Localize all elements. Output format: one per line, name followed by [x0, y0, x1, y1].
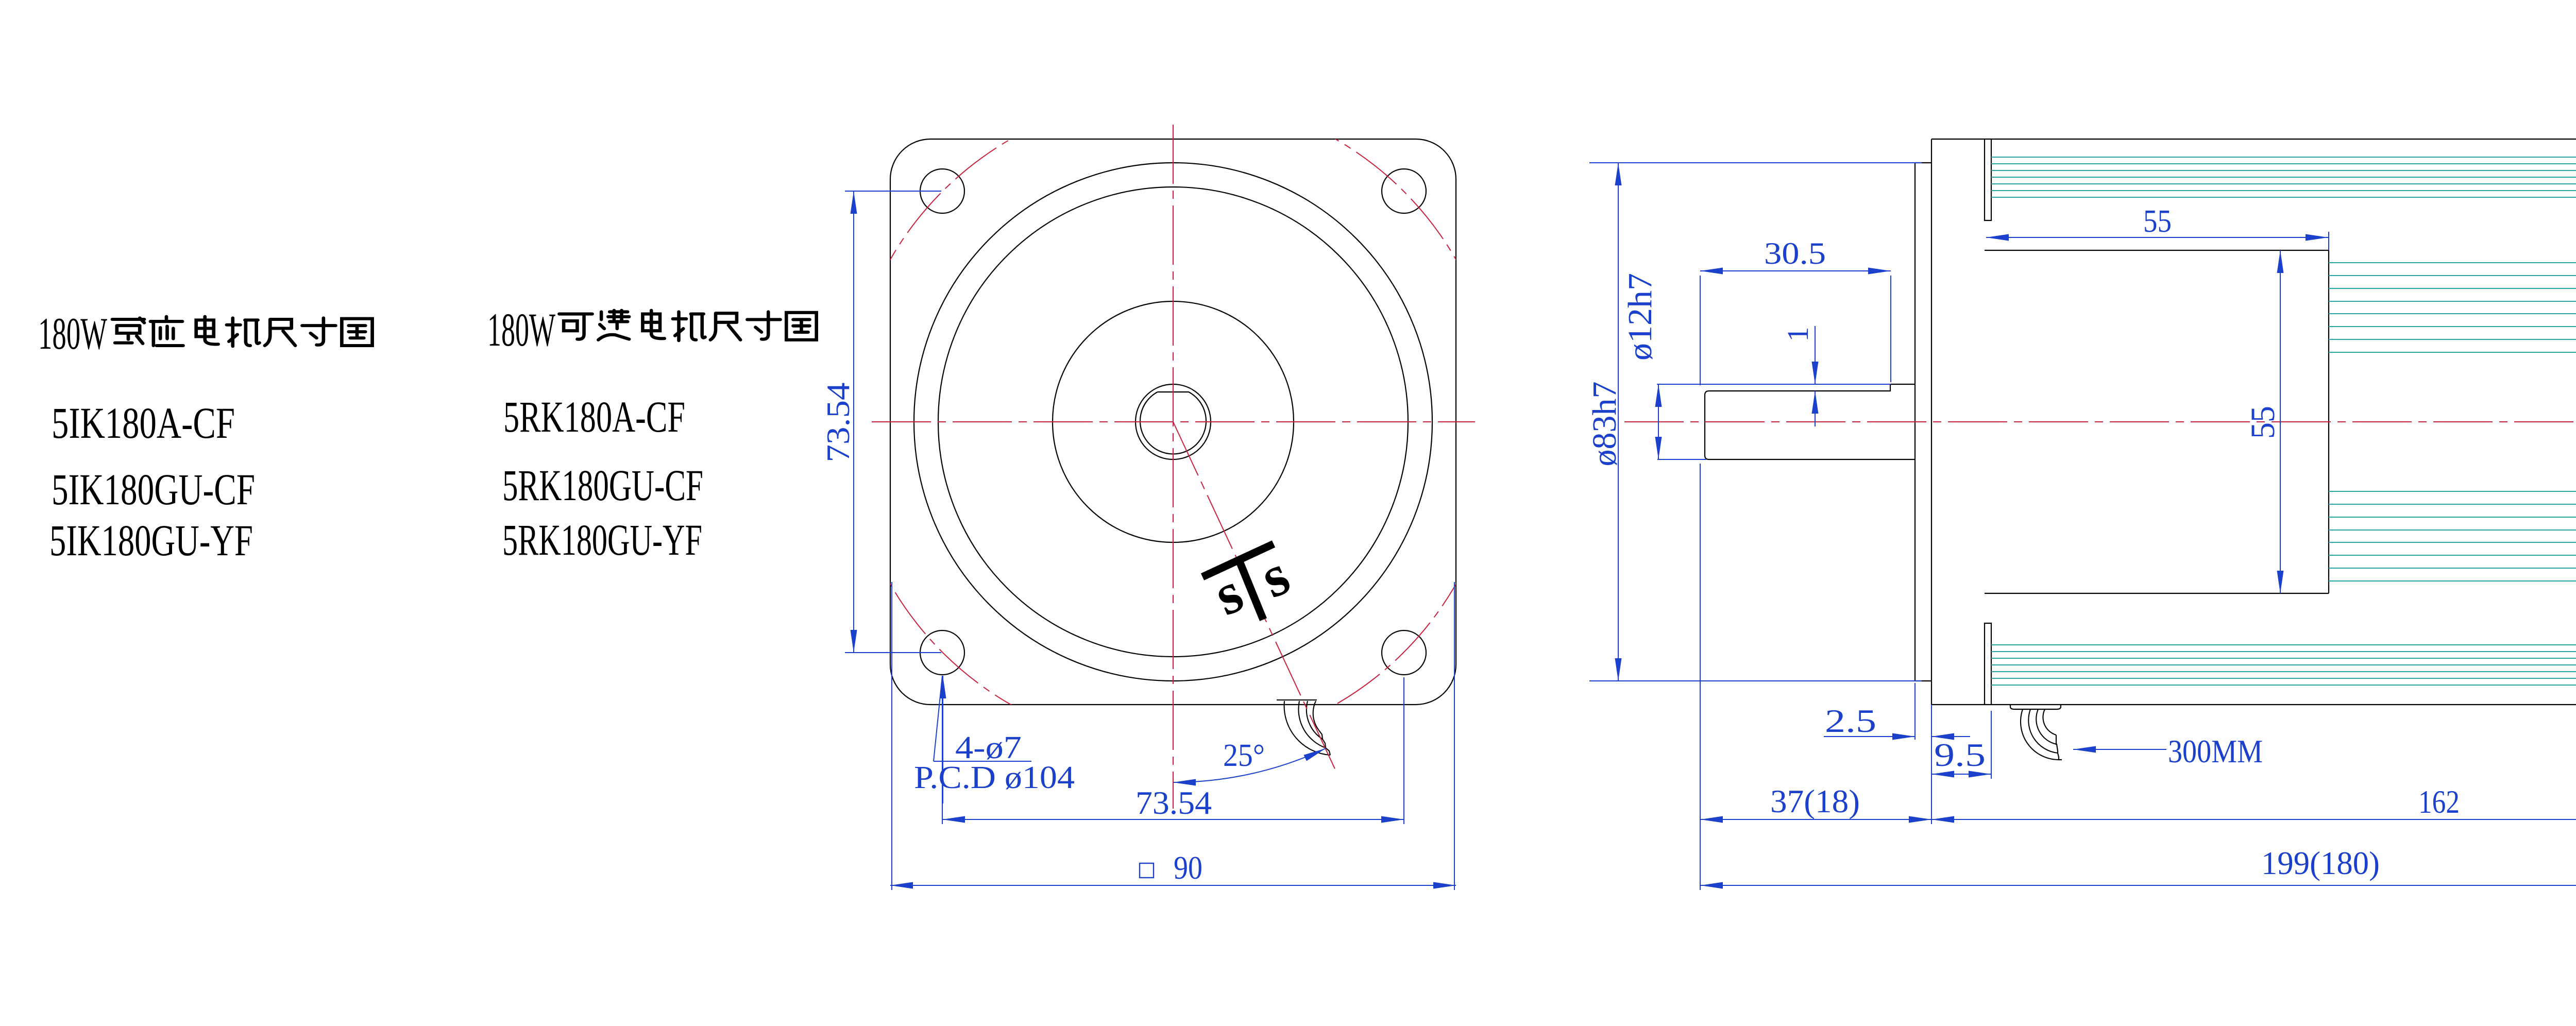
svg-text:2.5: 2.5	[1825, 703, 1876, 739]
svg-text:9.5: 9.5	[1934, 737, 1986, 773]
svg-text:180W: 180W	[38, 309, 107, 359]
svg-text:5IK180GU-CF: 5IK180GU-CF	[52, 465, 255, 514]
svg-text:199(180): 199(180)	[2261, 845, 2380, 881]
svg-text:180W: 180W	[487, 303, 555, 356]
svg-text:162: 162	[2418, 784, 2460, 820]
svg-text:30.5: 30.5	[1764, 236, 1826, 270]
svg-text:1: 1	[1781, 327, 1815, 342]
svg-text:300MM: 300MM	[2168, 733, 2263, 769]
svg-text:5RK180GU-YF: 5RK180GU-YF	[502, 515, 702, 565]
svg-text:73.54: 73.54	[820, 383, 856, 463]
svg-text:5RK180GU-CF: 5RK180GU-CF	[502, 460, 703, 510]
svg-text:ø83h7: ø83h7	[1586, 382, 1623, 467]
svg-text:73.54: 73.54	[1136, 785, 1212, 821]
svg-text:ø12h7: ø12h7	[1621, 273, 1659, 361]
svg-text:37(18): 37(18)	[1770, 783, 1860, 819]
svg-text:5IK180A-CF: 5IK180A-CF	[52, 398, 235, 448]
svg-text:90: 90	[1174, 850, 1202, 886]
svg-text:5IK180GU-YF: 5IK180GU-YF	[49, 516, 253, 565]
svg-text:25°: 25°	[1223, 738, 1265, 773]
svg-text:P.C.D ø104: P.C.D ø104	[914, 760, 1075, 795]
svg-text:5RK180A-CF: 5RK180A-CF	[503, 392, 685, 441]
svg-text:55: 55	[2244, 406, 2282, 439]
svg-text:55: 55	[2143, 204, 2172, 239]
